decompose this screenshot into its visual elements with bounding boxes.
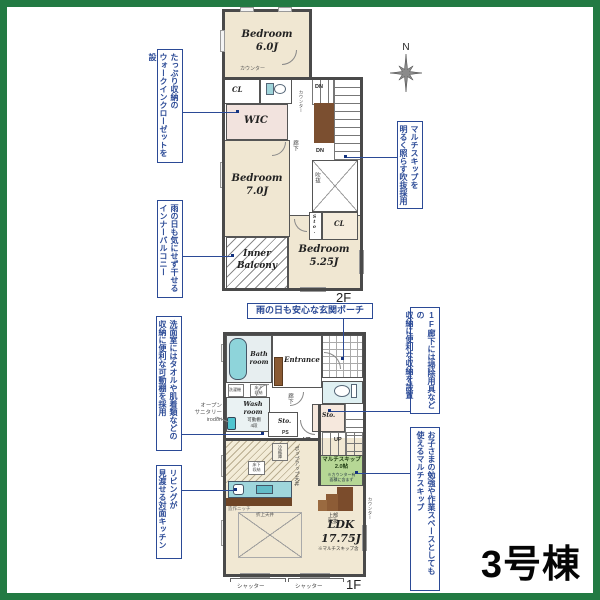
wall-1f-kitchen-top — [226, 438, 318, 441]
leader-dot-storage — [328, 409, 331, 412]
label-wash: Wash room — [238, 400, 268, 416]
label-inner-balcony: Inner Balcony — [226, 248, 288, 272]
annotation-multiskip: お子さまの勉強や作業スペースとしても 使えるマルチスキップ — [410, 427, 440, 591]
leader-storage — [330, 411, 410, 412]
label-entrance: Entrance — [282, 356, 322, 364]
annotation-storage: 1F廊下には掃除用具などの 収納に便利な収納を設置 — [410, 307, 440, 414]
label-2f-void: 吹抜 — [314, 172, 320, 183]
label-shutter-2: シャッター — [295, 584, 323, 590]
bathtub-icon — [229, 338, 247, 380]
label-coffered: 折上天井 — [256, 513, 274, 518]
leader-void — [346, 157, 397, 158]
label-shutter-1: シャッター — [237, 584, 265, 590]
leader-dot-kitchen — [234, 488, 237, 491]
annotation-balcony: 雨の日も気にせず干せる インナーバルコニー — [157, 200, 183, 298]
stairs-2f-run — [334, 79, 361, 160]
toilet-1f-bowl-icon — [334, 385, 350, 397]
label-ps: PS — [282, 431, 289, 437]
window-1f-left-c — [221, 520, 226, 546]
label-2f-hall: 廊下 — [292, 140, 298, 151]
sanitary-sink-icon — [227, 417, 236, 430]
label-1f-counter: カウンター — [367, 497, 372, 520]
window-2f-bottom — [300, 287, 326, 292]
label-underfloor-b: 床下 収納 — [248, 462, 265, 472]
annotation-void: マルチスキップを 明るく照らす吹抜採用 — [397, 121, 423, 209]
window-1f-right — [362, 525, 367, 551]
annotation-shelf: 洗面室にはタオルや肌着類などの 収納に便利な可動棚を採用 — [156, 316, 182, 451]
label-counter-top: カウンター — [240, 67, 265, 73]
label-2f-cl1: CL — [232, 86, 243, 94]
wall-1f-stairzone — [318, 404, 321, 486]
leader-dot-wic — [236, 110, 239, 113]
stairs-2f-landing — [314, 103, 334, 143]
label-up2: UP — [334, 437, 342, 443]
window-2f-left-b — [220, 162, 225, 188]
leader-balcony — [182, 256, 233, 257]
leader-dot-void — [344, 155, 347, 158]
label-2f-sto: Sto. — [311, 215, 316, 235]
compass-rose-icon — [390, 54, 422, 94]
label-shelf: 可動棚 4段 — [242, 417, 266, 429]
leader-porch — [343, 319, 344, 358]
label-2f-counter-stairs: カウンター — [298, 90, 303, 113]
window-2f-top-a — [240, 7, 254, 12]
leader-dot-porch — [341, 357, 344, 360]
label-bedroom-7j: Bedroom 7.0J — [224, 172, 290, 198]
window-2f-top-b — [278, 7, 292, 12]
leader-wic — [182, 112, 238, 113]
label-2f-wic: WIC — [244, 115, 268, 126]
window-1f-left-a — [221, 344, 226, 362]
coffered-ceiling — [238, 512, 302, 558]
kitchen-niche-band — [226, 498, 292, 506]
building-number-label: 3号棟 — [478, 545, 584, 587]
leader-dot-multiskip — [355, 471, 358, 474]
room-2f-void — [312, 160, 358, 212]
annotation-wic: たっぷり収納の ウォークインクローゼットを設 — [157, 49, 183, 163]
label-2f-dn2: DN — [316, 148, 324, 154]
floorplan-flyer: Bedroom 6.0J カウンター CL WIC Bedroom 7.0J 廊… — [0, 0, 600, 600]
label-sto-a: Sto. — [278, 419, 291, 426]
label-open-sanitary: オープン サニタリー irodori — [190, 403, 222, 424]
window-2f-left-a — [220, 30, 225, 52]
toilet-2f-icon — [266, 83, 274, 95]
shutter-bracket-1 — [230, 578, 286, 582]
toilet-2f-bowl-icon — [274, 84, 286, 94]
leader-shelf — [181, 434, 263, 435]
label-washer: 洗濯機 — [229, 388, 241, 392]
stairs-1f-lower — [322, 432, 366, 457]
leader-dot-balcony — [231, 254, 234, 257]
multiskip-steps-a — [337, 487, 353, 511]
leader-multiskip — [357, 473, 410, 474]
label-ldk: LDK 17.75J — [316, 518, 366, 546]
label-1f: 1F — [346, 578, 361, 592]
multiskip-steps-c — [318, 500, 327, 511]
compass-n-label: N — [398, 42, 414, 53]
window-2f-right — [359, 250, 364, 274]
label-fridge: 冷蔵庫 — [277, 445, 282, 459]
toilet-1f-tank-icon — [351, 384, 357, 398]
shutter-bracket-2 — [288, 578, 344, 582]
label-bath: Bath room — [246, 350, 272, 366]
leader-kitchen — [181, 490, 236, 491]
window-1f-left-b — [221, 455, 226, 477]
entrance-step-icon — [274, 357, 283, 386]
label-2f-dn1: DN — [315, 84, 323, 90]
label-bedroom-525: Bedroom 5.25J — [288, 243, 360, 269]
label-2f-cl2: CL — [334, 220, 345, 228]
label-sto-b: Sto. — [322, 413, 335, 420]
annotation-porch: 雨の日も安心な玄関ポーチ — [247, 303, 373, 319]
label-popup-ceiling: ポップアップ天井 — [293, 446, 299, 486]
label-ldk-note: ※マルチスキップ含 — [318, 547, 359, 552]
multiskip-steps-b — [326, 494, 338, 511]
kitchen-stove-icon — [256, 485, 273, 494]
label-multiskip: マルチスキップ 2.0帖 — [320, 457, 363, 471]
stairs-2f-upper — [312, 79, 334, 105]
leader-dot-shelf — [261, 432, 264, 435]
annotation-kitchen: リビングが 見渡せる対面キッチン — [156, 465, 182, 559]
